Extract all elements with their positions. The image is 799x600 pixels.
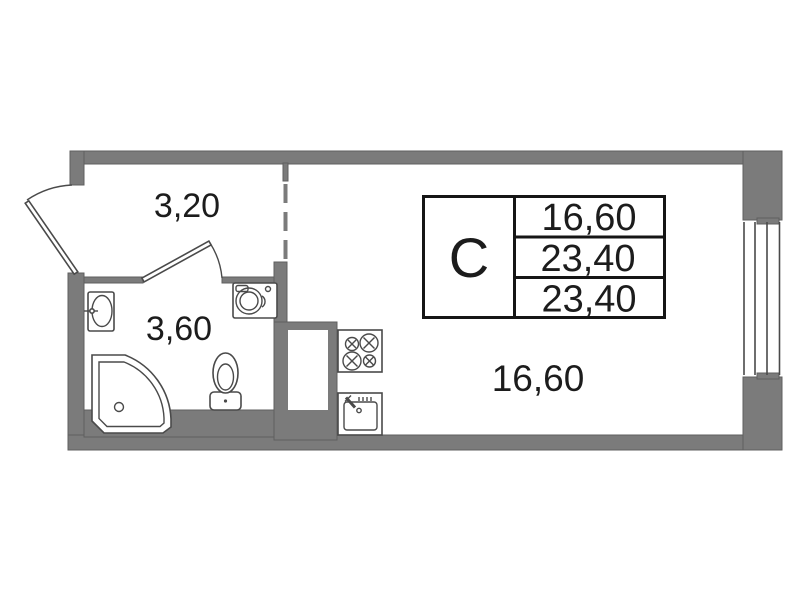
- entrance-door-leaf: [25, 201, 78, 274]
- bathroom-door-swing-arc: [210, 243, 222, 278]
- entrance-door-swing-arc: [27, 185, 72, 200]
- main-room-area-label: 16,60: [492, 358, 585, 399]
- bathroom-area-label: 3,60: [146, 310, 212, 348]
- zone-divider-stub: [283, 163, 288, 181]
- table-area-value-3: 23,40: [541, 279, 636, 321]
- studio-floor-plan: С 16,60 23,40 23,40 3,20 3,60 16,60: [0, 0, 799, 600]
- ventilation-shaft: [288, 330, 328, 410]
- wall-top: [70, 151, 782, 164]
- bathroom-door-leaf: [142, 241, 211, 282]
- stove-icon: [338, 330, 382, 372]
- wall-right-bottom: [743, 377, 782, 450]
- washing-machine-icon: [233, 283, 277, 318]
- wall-bathroom-top-right: [222, 277, 277, 283]
- bathroom-sink-icon: [84, 292, 114, 331]
- area-table: С 16,60 23,40 23,40: [424, 197, 665, 321]
- table-area-value-2: 23,40: [540, 238, 635, 280]
- toilet-icon: [210, 353, 241, 410]
- wall-right-top-step: [757, 218, 779, 224]
- shower-icon: [92, 355, 171, 433]
- floor-plan-drawing: С 16,60 23,40 23,40 3,20 3,60 16,60: [0, 0, 799, 600]
- table-area-value-1: 16,60: [541, 197, 636, 239]
- bathroom-door-icon: [142, 241, 222, 282]
- entrance-door-icon: [25, 185, 78, 274]
- wall-bathroom-top-left: [84, 277, 143, 283]
- wall-entrance-pier: [70, 151, 84, 185]
- wall-right-bottom-step: [757, 373, 779, 379]
- unit-type-label: С: [449, 226, 489, 289]
- hallway-area-label: 3,20: [154, 187, 220, 225]
- wall-right-top: [743, 151, 782, 220]
- wall-left: [68, 273, 84, 450]
- window-icon: [744, 222, 780, 375]
- kitchen-sink-icon: [338, 393, 382, 435]
